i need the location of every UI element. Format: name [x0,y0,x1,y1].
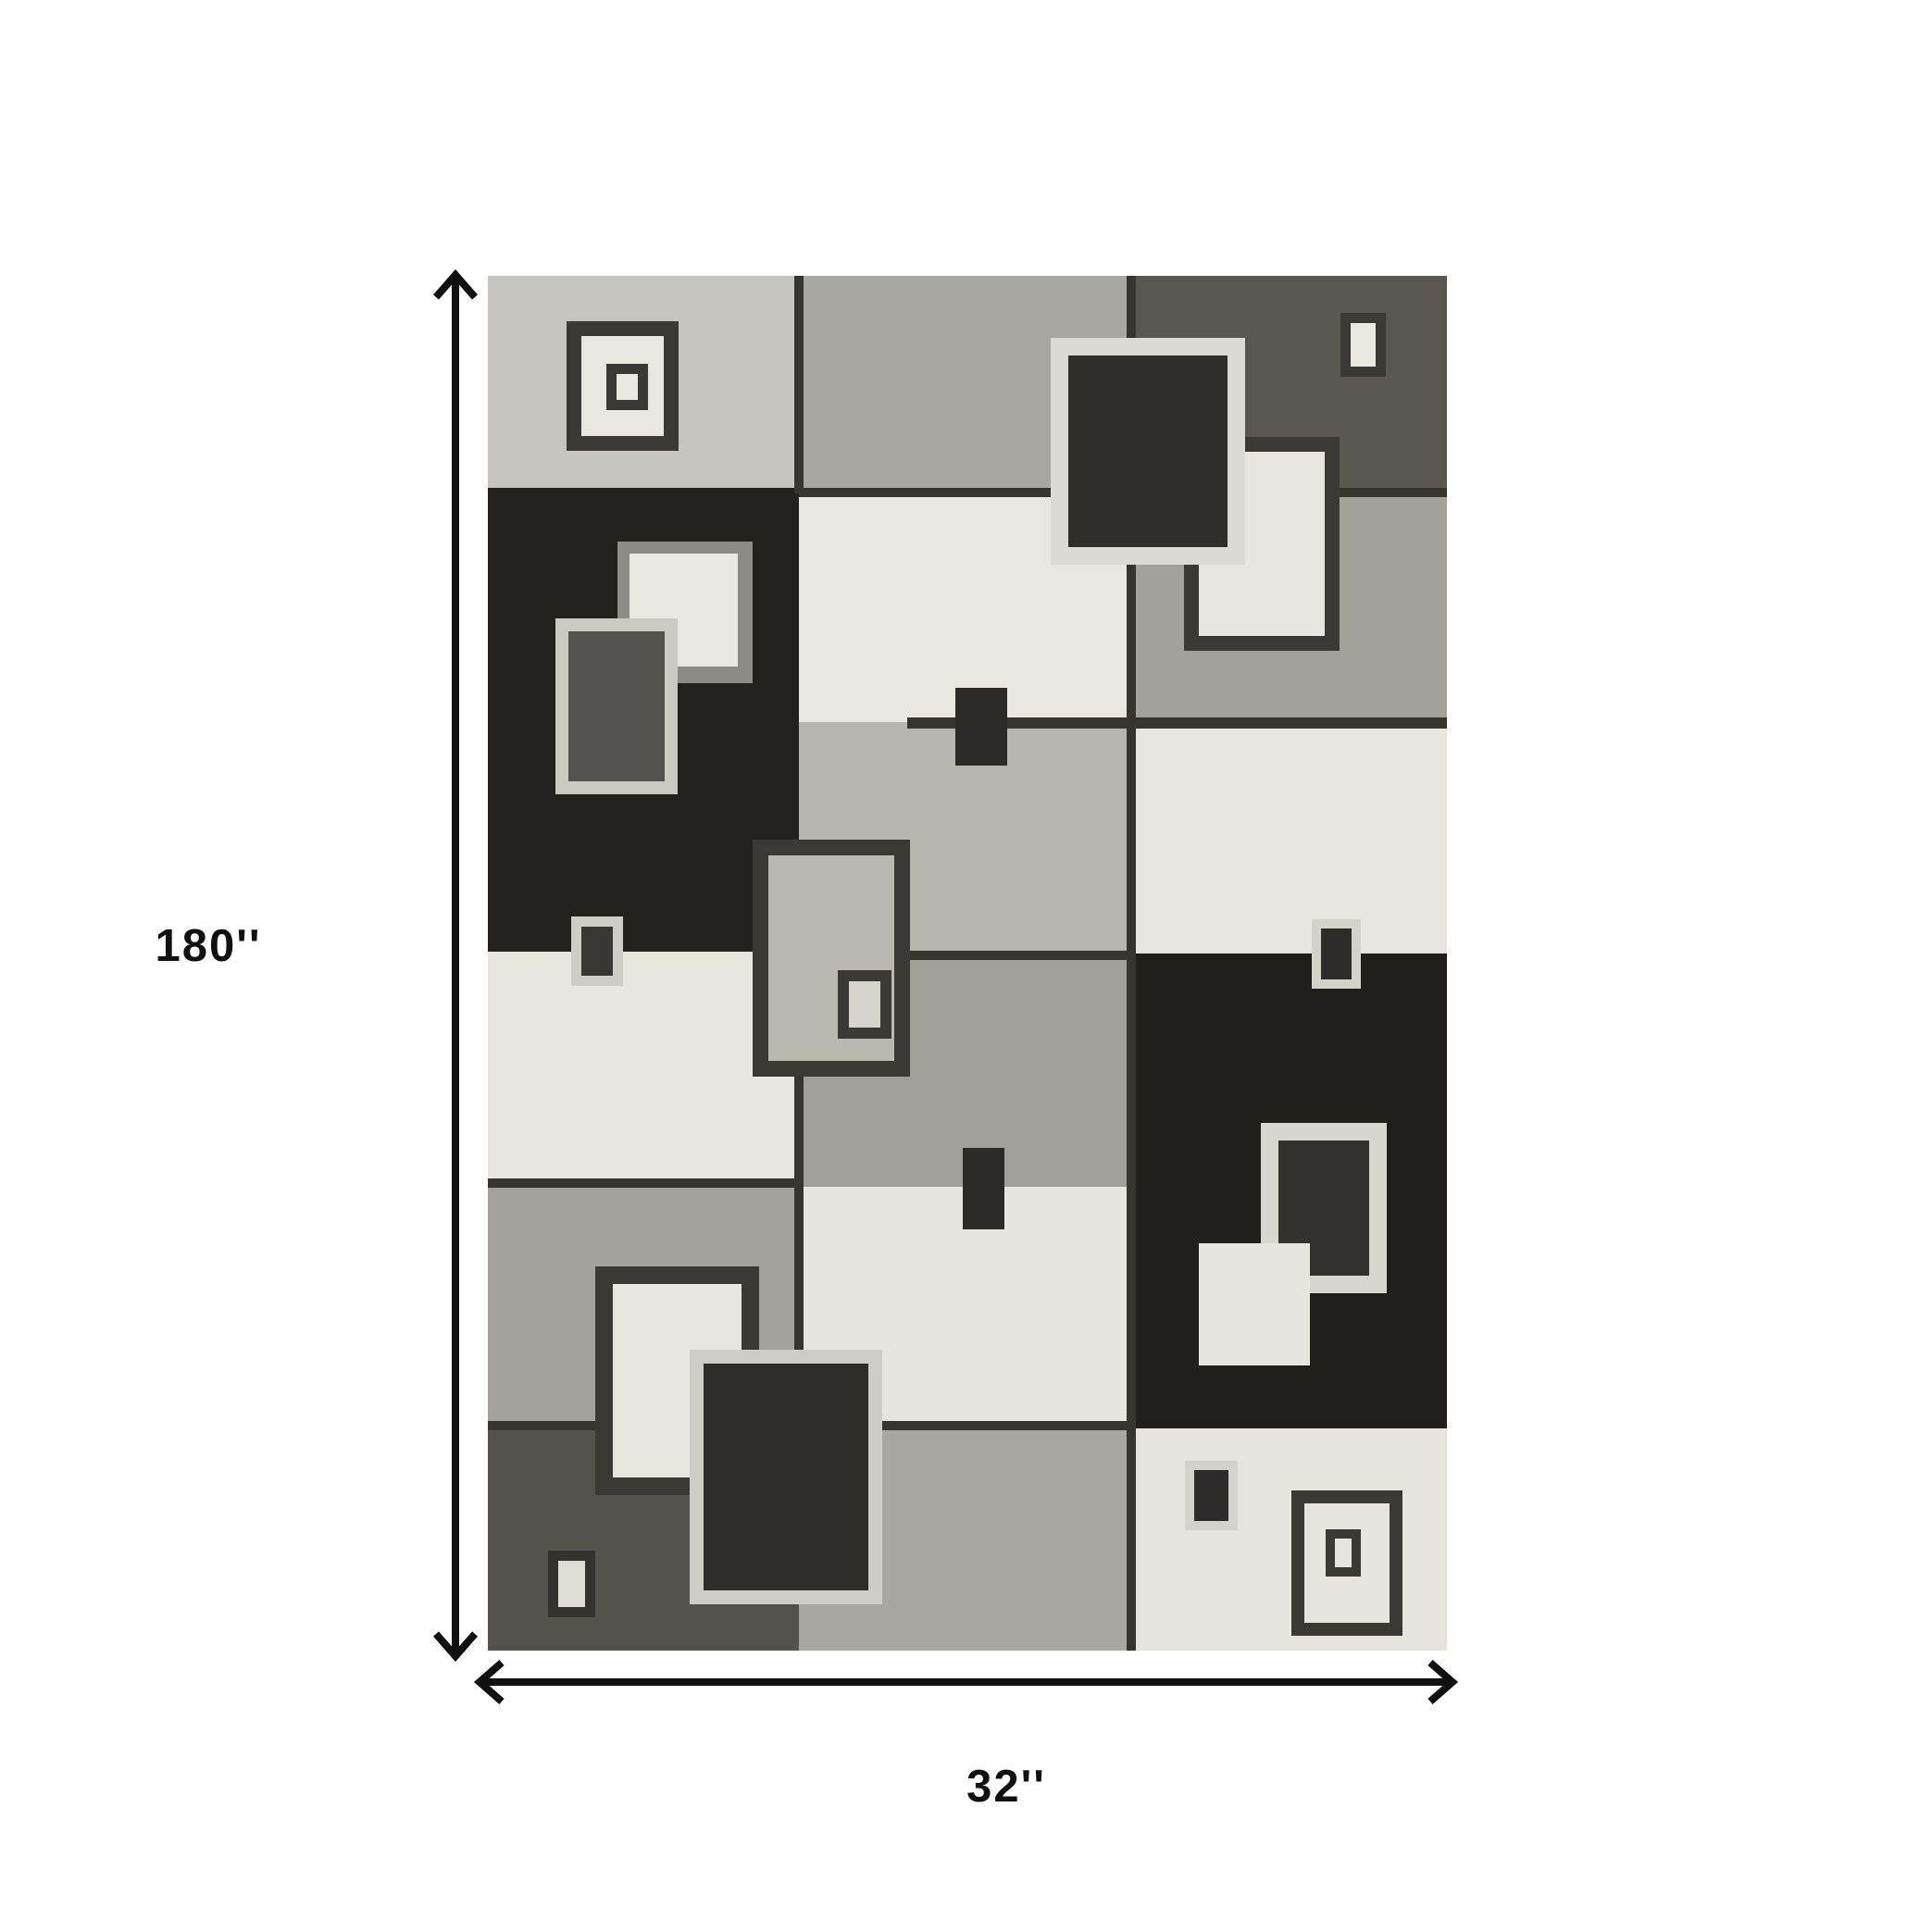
sq-topright-dark [1051,338,1245,565]
sq-bottomleft-small [548,1551,595,1617]
sq-bottomright-dark-small [1185,1461,1238,1530]
sq-center-frame-inner [838,970,891,1039]
sq-right-white [1199,1243,1310,1365]
sq-left-outline [555,618,678,794]
sq-left-small-outline [571,916,623,986]
product-dimension-diagram: 180'' 32'' [0,0,1932,1932]
sq-middle-dark-small-2 [963,1148,1004,1229]
width-dimension-label: 32'' [918,1763,1094,1811]
grid-v1 [794,276,804,493]
rug-image [488,276,1447,1651]
sq-right-dark-small [1312,919,1361,989]
grid-h4 [488,1178,804,1188]
patch-col3-row3-cream [1131,717,1447,954]
sq-center-frame [753,840,910,1077]
sq-middle-dark-small [955,688,1007,766]
width-dimension-arrow [470,1647,1461,1717]
sq-bottom-dark [690,1350,882,1604]
sq-topleft-frame-inner [606,364,648,410]
sq-bottomright-frame-inner [1326,1529,1361,1577]
height-dimension-arrow [421,267,491,1666]
sq-topright-small-white [1340,313,1386,377]
grid-v4 [794,1077,804,1178]
grid-h3 [910,951,1131,960]
height-dimension-label: 180'' [120,922,296,970]
